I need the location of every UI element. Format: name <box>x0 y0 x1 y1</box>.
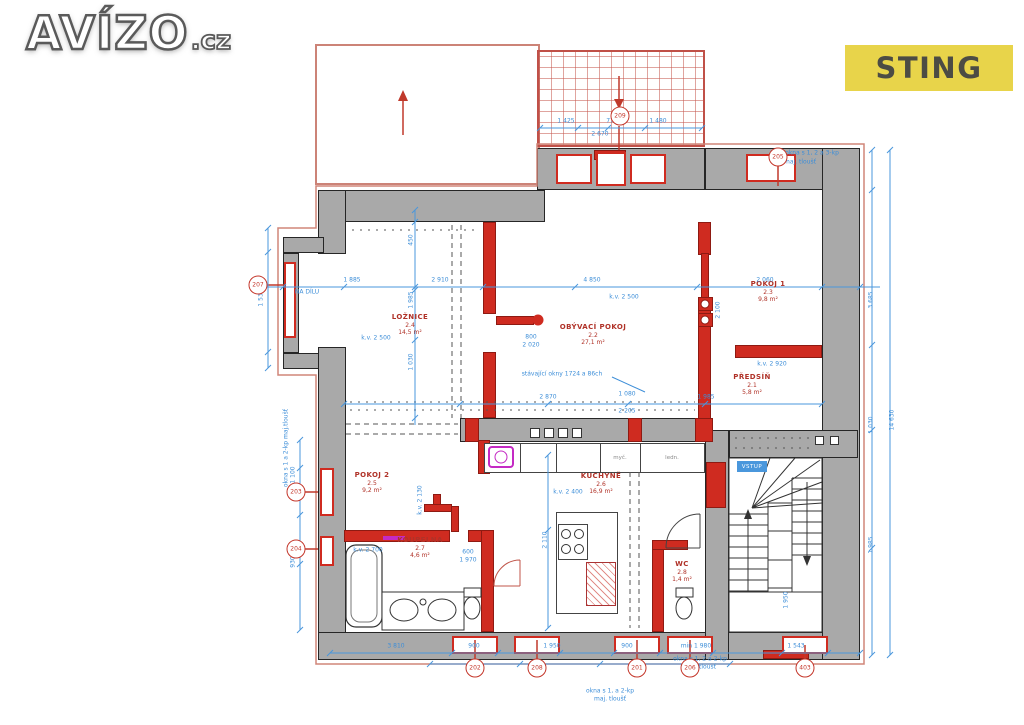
room-area: 16,9 m² <box>581 488 622 496</box>
plan-linework <box>0 0 1024 725</box>
room-name: PŘEDSÍŇ <box>733 373 770 382</box>
room-number: 2.5 <box>355 480 390 488</box>
hinge-pin <box>701 316 709 324</box>
dimension-label: 2 205 <box>618 408 635 415</box>
room-name: LOŽNICE <box>392 313 428 322</box>
reference-tag: 403 <box>796 659 815 678</box>
reference-tag: 208 <box>528 659 547 678</box>
dimension-label: 3 685 <box>868 291 875 308</box>
reference-tag: 206 <box>681 659 700 678</box>
room-number: 2.6 <box>581 481 622 489</box>
door-swing <box>666 514 700 548</box>
room-label: WC 2.8 1,4 m² <box>672 560 692 584</box>
dimension-label: k.v. 2 500 <box>361 335 390 342</box>
reference-tag: 205 <box>769 148 788 167</box>
floor-plan: VSTUP LOŽNICE 2.4 14,5 m² OBÝVACÍ POKOJ … <box>0 0 1024 725</box>
reference-tag: 207 <box>249 276 268 295</box>
washbasins <box>382 592 464 630</box>
dimension-label: 2 110 <box>542 531 549 548</box>
reference-tag: 201 <box>628 659 647 678</box>
dimension-label: k.v. 2 130 <box>417 485 424 514</box>
room-area: 4,6 m² <box>397 552 443 560</box>
dimension-label: 2 870 <box>539 394 556 401</box>
room-number: 2.7 <box>397 545 443 553</box>
hinge-pin <box>701 300 709 308</box>
reference-tag: 203 <box>287 483 306 502</box>
room-name: KUCHYNĚ <box>581 472 622 481</box>
toilet <box>464 588 481 619</box>
room-number: 2.4 <box>392 322 428 330</box>
room-area: 27,1 m² <box>560 339 626 347</box>
arrow-head-up <box>398 90 408 101</box>
reference-tag: 202 <box>466 659 485 678</box>
dimension-label: 1 950 <box>543 643 560 650</box>
annotation: stávající okny 1724 a 86ch <box>522 371 603 378</box>
dimension-label: 1 543 <box>787 643 804 650</box>
room-label: POKOJ 2 2.5 9,2 m² <box>355 471 390 495</box>
dimension-label: min 1 980 <box>681 643 711 650</box>
room-area: 9,2 m² <box>355 487 390 495</box>
room-label: KUCHYNĚ 2.6 16,9 m² <box>581 472 622 496</box>
dimension-label: 1 950 <box>783 591 790 608</box>
dimension-label: 1 985 <box>697 394 714 401</box>
reference-tag: 209 <box>611 107 630 126</box>
dimension-label: 1 080 <box>618 391 635 398</box>
room-label: POKOJ 1 2.3 9,8 m² <box>751 280 786 304</box>
dimension-label: 450 <box>408 234 415 245</box>
annotation: okna s 1, a 2-kp <box>586 688 634 695</box>
dimension-label: 1 030 <box>408 353 415 370</box>
room-label: KOUPELNA 2.7 4,6 m² <box>397 536 443 560</box>
annotation: okna s 1, 2 a 3-kp <box>785 150 839 157</box>
room-name: OBÝVACÍ POKOJ <box>560 323 626 332</box>
dimension-label: 800 <box>525 334 536 341</box>
dimension-label: 1 425 <box>557 118 574 125</box>
dimension-label: 1 970 <box>459 557 476 564</box>
dimension-label: 1 985 <box>868 536 875 553</box>
room-number: 2.8 <box>672 569 692 577</box>
dimension-label: 1 985 <box>408 291 415 308</box>
dimension-label: 2 670 <box>591 131 608 138</box>
dimension-label: 900 <box>468 643 479 650</box>
fixture-label: myč. <box>613 455 626 461</box>
room-area: 5,8 m² <box>733 389 770 397</box>
fixture-label: ledn. <box>665 455 679 461</box>
annotation: okna s 1, 2 a 2-kp <box>673 656 727 663</box>
dimension-label: k.v. 2 400 <box>553 489 582 496</box>
annotation: okna s 1 a 2-kp maj.tloušť <box>283 409 290 487</box>
room-label: LOŽNICE 2.4 14,5 m² <box>392 313 428 337</box>
dimension-label: 2 100 <box>715 301 722 318</box>
reference-tag: 204 <box>287 540 306 559</box>
stove-burners <box>562 530 584 554</box>
room-area: 14,5 m² <box>392 329 428 337</box>
staircase <box>729 458 822 632</box>
room-number: 2.3 <box>751 289 786 297</box>
dimension-label: 14 630 <box>889 410 896 431</box>
room-area: 1,4 m² <box>672 576 692 584</box>
dimension-label: 2 910 <box>431 277 448 284</box>
dimension-label: 600 <box>462 549 473 556</box>
room-name: WC <box>672 560 692 569</box>
door-knob <box>533 315 544 326</box>
dimension-label: 1 885 <box>343 277 360 284</box>
bathtub <box>346 545 382 627</box>
dashed-walls <box>346 225 639 628</box>
dimension-label: 1 100 <box>290 466 297 483</box>
dimension-label: 1 480 <box>649 118 666 125</box>
dimension-label: 1 030 <box>868 416 875 433</box>
room-name: POKOJ 2 <box>355 471 390 480</box>
room-label: OBÝVACÍ POKOJ 2.2 27,1 m² <box>560 323 626 347</box>
dimension-label: k.v. 2 700 <box>353 547 382 554</box>
dimension-label: k.v. 2 500 <box>609 294 638 301</box>
dimension-label: 2 020 <box>522 342 539 349</box>
dimension-label: 3 810 <box>387 643 404 650</box>
toilet <box>676 588 693 619</box>
room-number: 2.2 <box>560 332 626 340</box>
sink-bowl <box>495 451 507 463</box>
dimension-label: 2 060 <box>756 277 773 284</box>
dimension-label: k.v. 2 920 <box>757 361 786 368</box>
floor-plan-photo: AVÍZO .cz STING <box>0 0 1024 725</box>
dimension-label: 4 850 <box>583 277 600 284</box>
room-area: 9,8 m² <box>751 296 786 304</box>
annotation: NA DÍLU <box>295 289 319 296</box>
annotation: maj. tloušť <box>784 159 816 166</box>
room-name: KOUPELNA <box>397 536 443 545</box>
stair-badge: VSTUP <box>737 461 767 472</box>
door-swing <box>494 560 520 586</box>
annotation: maj. tloušť <box>594 696 626 703</box>
room-label: PŘEDSÍŇ 2.1 5,8 m² <box>733 373 770 397</box>
room-number: 2.1 <box>733 382 770 390</box>
dimension-label: 900 <box>621 643 632 650</box>
